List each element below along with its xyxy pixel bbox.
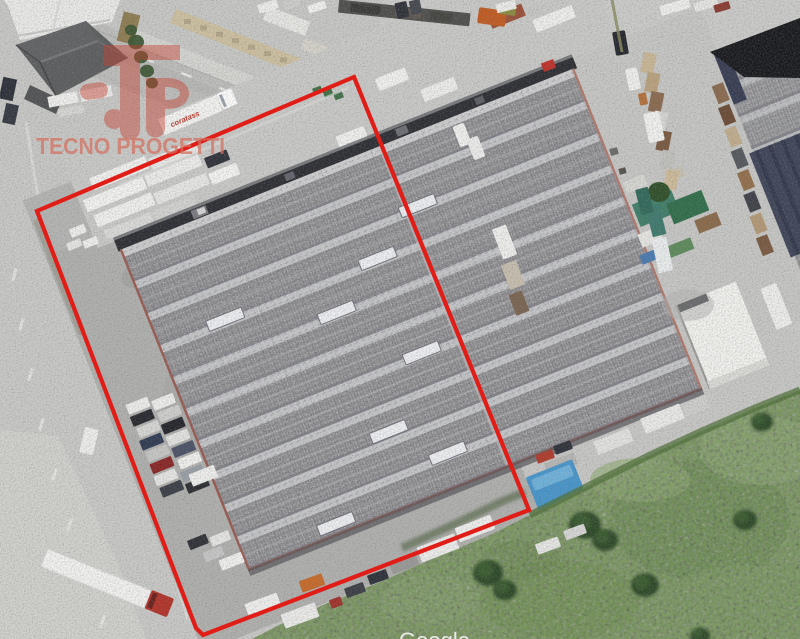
svg-text:Google: Google bbox=[399, 628, 470, 639]
svg-text:TECNO PROGETTI: TECNO PROGETTI bbox=[36, 133, 225, 159]
